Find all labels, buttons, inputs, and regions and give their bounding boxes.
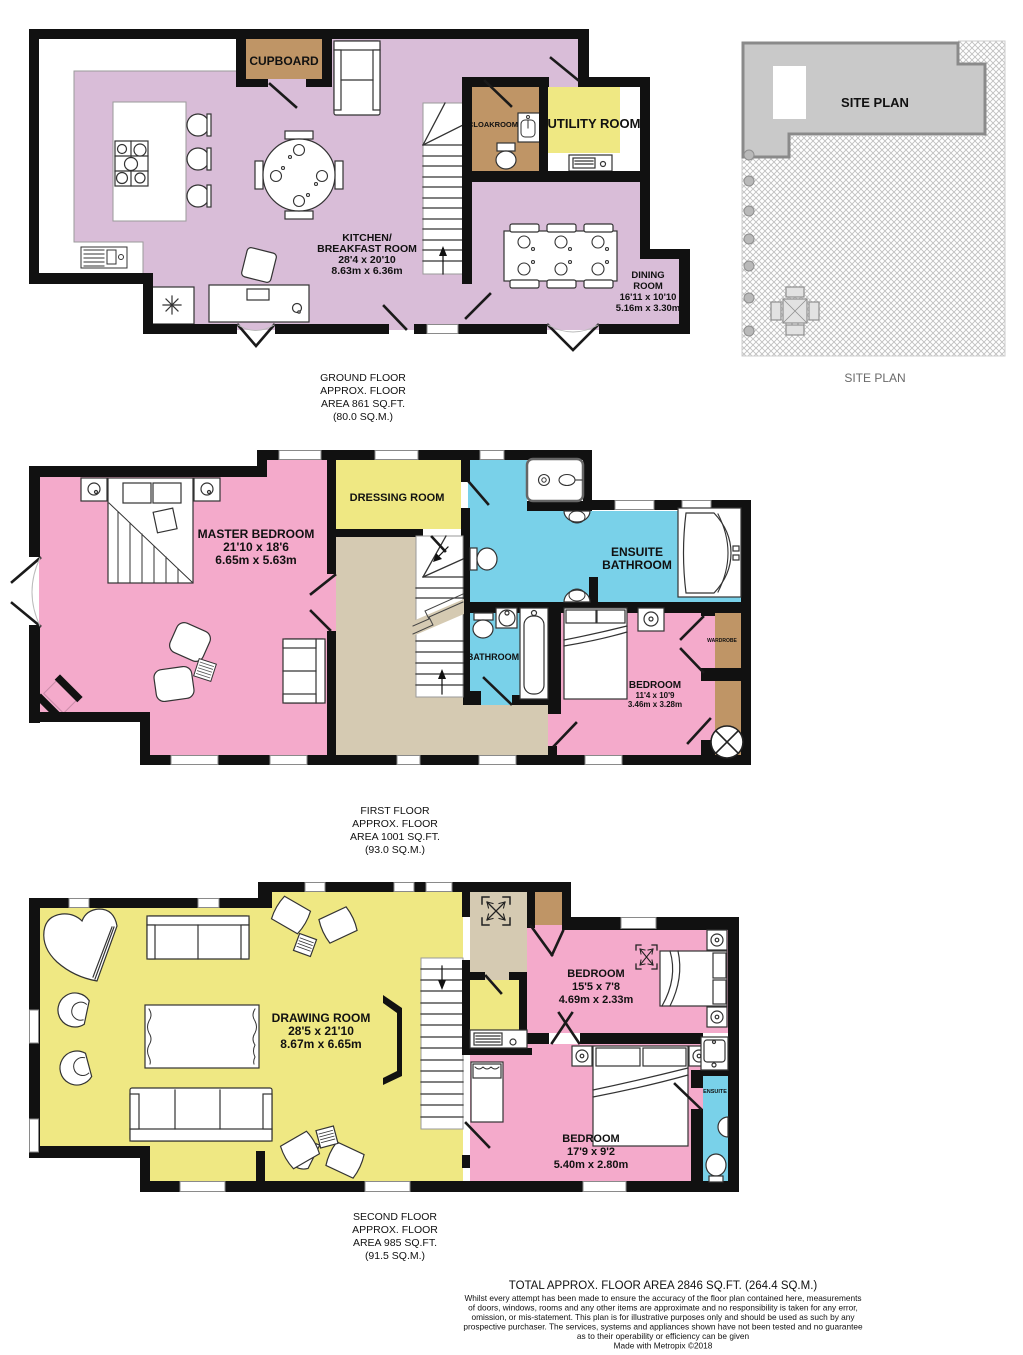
svg-text:Whilst every attempt has been: Whilst every attempt has been made to en… [464,1293,861,1303]
svg-text:CLOAKROOM: CLOAKROOM [468,120,518,129]
svg-text:28'5 x 21'10: 28'5 x 21'10 [288,1024,354,1038]
svg-text:BEDROOM: BEDROOM [562,1133,619,1145]
svg-text:BATHROOM: BATHROOM [467,652,519,662]
svg-text:BATHROOM: BATHROOM [602,558,672,572]
svg-text:FIRST FLOOR: FIRST FLOOR [360,805,430,817]
svg-text:5.16m x 3.30m: 5.16m x 3.30m [616,303,680,314]
svg-text:11'4 x 10'9: 11'4 x 10'9 [636,691,676,700]
svg-text:UTILITY ROOM: UTILITY ROOM [548,116,641,131]
svg-text:AREA 861 SQ.FT.: AREA 861 SQ.FT. [321,398,405,410]
svg-text:DRAWING ROOM: DRAWING ROOM [272,1011,371,1025]
svg-text:TOTAL APPROX. FLOOR AREA 2846: TOTAL APPROX. FLOOR AREA 2846 SQ.FT. (26… [509,1280,818,1292]
svg-text:omission, or mis-statement. Th: omission, or mis-statement. This plan is… [471,1312,855,1322]
svg-text:(80.0 SQ.M.): (80.0 SQ.M.) [333,411,393,423]
svg-text:as to their operability or eff: as to their operability or efficiency ca… [577,1331,750,1341]
svg-text:of doors, windows, rooms and a: of doors, windows, rooms and any other i… [468,1303,858,1313]
svg-text:ROOM: ROOM [633,281,663,292]
svg-text:(93.0 SQ.M.): (93.0 SQ.M.) [365,844,425,856]
svg-text:21'10 x 18'6: 21'10 x 18'6 [223,540,289,554]
svg-text:SECOND FLOOR: SECOND FLOOR [353,1211,437,1223]
svg-text:MASTER BEDROOM: MASTER BEDROOM [198,527,315,541]
svg-text:17'9 x 9'2: 17'9 x 9'2 [567,1146,615,1158]
svg-text:6.65m x 5.63m: 6.65m x 5.63m [215,553,296,567]
svg-text:APPROX. FLOOR: APPROX. FLOOR [320,385,406,397]
svg-text:prospective purchaser. The ser: prospective purchaser. The services, sys… [463,1322,863,1332]
svg-text:APPROX. FLOOR: APPROX. FLOOR [352,818,438,830]
svg-text:DRESSING ROOM: DRESSING ROOM [350,492,445,504]
svg-text:4.69m x 2.33m: 4.69m x 2.33m [559,994,634,1006]
svg-text:APPROX. FLOOR: APPROX. FLOOR [352,1224,438,1236]
svg-text:ENSUITE: ENSUITE [611,545,663,559]
svg-text:5.40m x 2.80m: 5.40m x 2.80m [554,1159,629,1171]
svg-text:SITE PLAN: SITE PLAN [844,371,905,385]
svg-text:BEDROOM: BEDROOM [567,968,624,980]
svg-text:DINING: DINING [631,270,664,281]
svg-text:3.46m x 3.28m: 3.46m x 3.28m [628,700,682,709]
svg-text:GROUND FLOOR: GROUND FLOOR [320,372,406,384]
svg-text:WARDROBE: WARDROBE [707,638,737,644]
svg-text:SITE PLAN: SITE PLAN [841,95,909,110]
svg-text:(91.5 SQ.M.): (91.5 SQ.M.) [365,1250,425,1262]
svg-text:8.63m x 6.36m: 8.63m x 6.36m [331,265,402,277]
svg-text:BEDROOM: BEDROOM [629,680,681,691]
svg-text:ENSUITE: ENSUITE [703,1089,727,1095]
svg-text:15'5 x 7'8: 15'5 x 7'8 [572,981,620,993]
svg-text:AREA 1001 SQ.FT.: AREA 1001 SQ.FT. [350,831,440,843]
svg-text:16'11 x 10'10: 16'11 x 10'10 [620,292,677,303]
svg-text:AREA 985 SQ.FT.: AREA 985 SQ.FT. [353,1237,437,1249]
svg-text:CUPBOARD: CUPBOARD [249,54,319,68]
svg-text:Made with Metropix ©2018: Made with Metropix ©2018 [614,1341,713,1351]
svg-text:8.67m x 6.65m: 8.67m x 6.65m [280,1037,361,1051]
